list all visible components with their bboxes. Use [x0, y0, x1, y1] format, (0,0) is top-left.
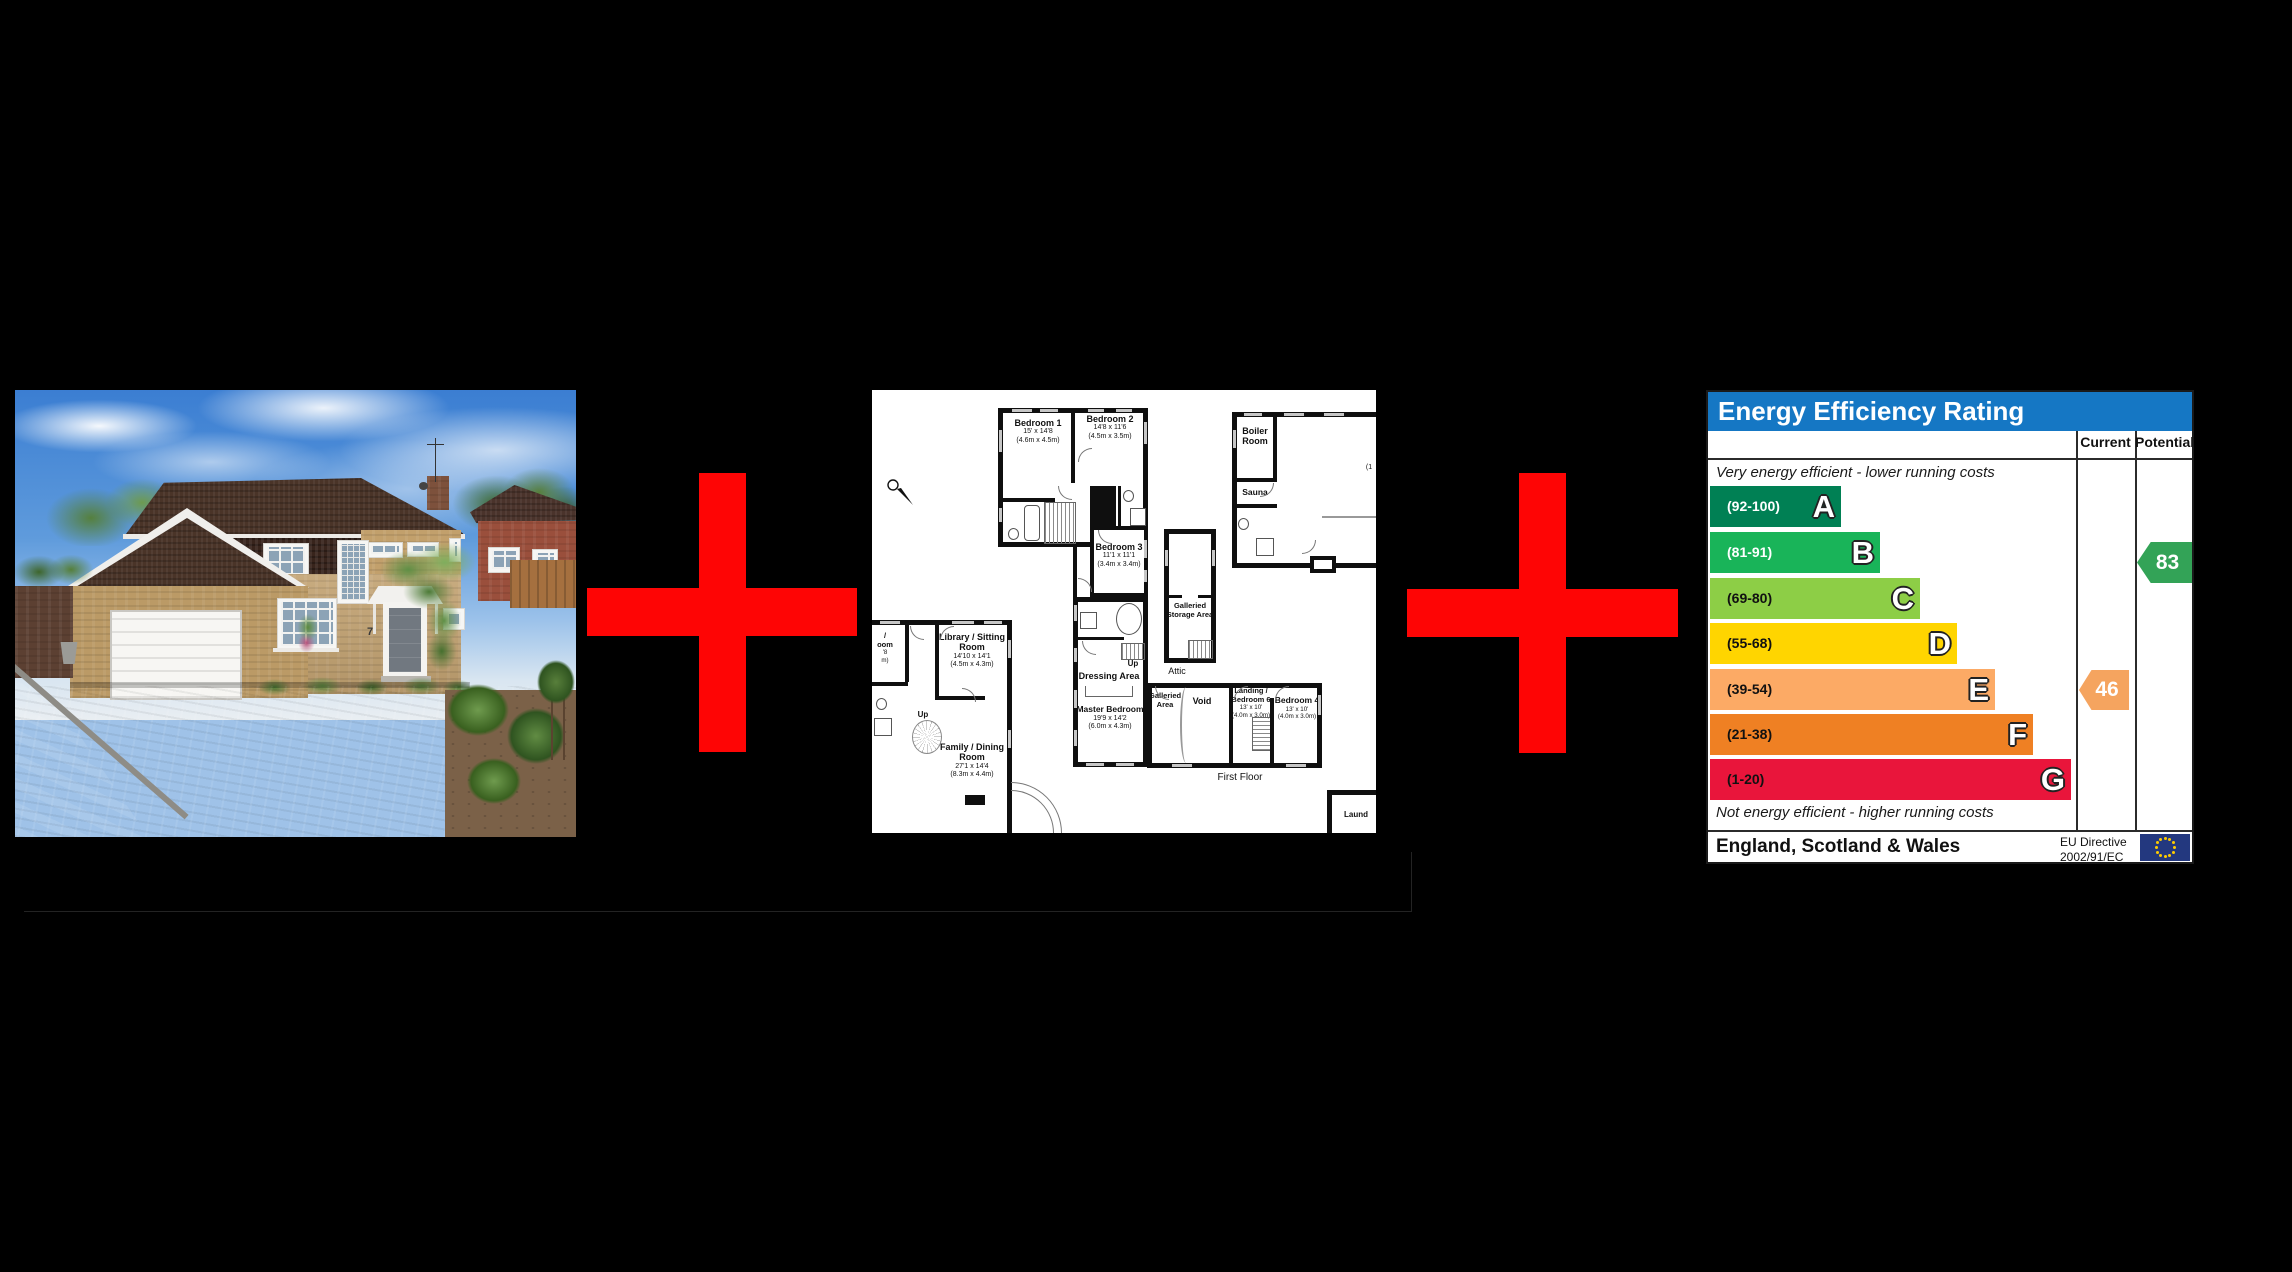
staircase: [1188, 640, 1213, 659]
window-gap: [1040, 409, 1058, 412]
bathtub-icon: [1116, 603, 1142, 635]
room-fragment: Laund: [1336, 810, 1376, 819]
wall: [1073, 547, 1077, 601]
band-letter: A: [1813, 487, 1835, 526]
epc-chart: Energy Efficiency Rating Current Potenti…: [1706, 390, 2194, 864]
porch-bump: [1310, 556, 1336, 573]
window-gap: [1144, 540, 1147, 558]
satellite-dish-icon: [419, 482, 428, 490]
column-divider: [2135, 431, 2137, 830]
band-letter: B: [1852, 533, 1874, 572]
toilet-icon: [1123, 490, 1134, 502]
epc-band-d: (55-68) D: [1710, 623, 1957, 664]
room-fragment: / oom '8 m): [872, 632, 900, 664]
divider-line-bottom: [24, 911, 1412, 912]
window-gap: [1116, 763, 1134, 766]
toilet-icon: [1238, 518, 1249, 530]
house-photo: 7: [15, 390, 576, 837]
window-gap: [1318, 695, 1321, 715]
attic-label: Attic: [1162, 666, 1192, 677]
fireplace: [965, 795, 985, 805]
shower-icon: [874, 718, 892, 736]
window-gap: [1074, 605, 1077, 621]
window-gap: [952, 621, 974, 624]
staircase: [1121, 643, 1145, 660]
window-gap: [880, 621, 900, 624]
wall: [1273, 412, 1277, 482]
wall: [1169, 595, 1182, 598]
eu-directive-line1: EU Directive: [2060, 835, 2138, 850]
window-gap: [1244, 413, 1262, 416]
balcony-rail: [1322, 516, 1376, 518]
band-range: (69-80): [1727, 578, 1772, 619]
chimney: [427, 476, 449, 510]
window-gap: [1012, 409, 1032, 412]
toilet-icon: [876, 698, 887, 710]
window-gap: [1165, 550, 1168, 566]
bush: [467, 758, 521, 804]
band-letter: F: [2008, 715, 2027, 754]
room-label: Master Bedroom 19'9 x 14'2 (6.0m x 4.3m): [1075, 705, 1145, 732]
potential-rating-marker: 83: [2137, 542, 2192, 583]
up-label: Up: [914, 710, 932, 719]
tv-aerial-icon: [427, 444, 444, 445]
house-number: 7: [367, 626, 373, 638]
footer-region: England, Scotland & Wales: [1716, 836, 1960, 858]
band-letter: C: [1892, 579, 1914, 618]
room-label: Void: [1188, 696, 1216, 706]
wardrobe-icon: [1085, 686, 1133, 697]
window-gap: [1212, 550, 1215, 566]
climbing-plant: [421, 598, 467, 674]
column-divider: [2076, 431, 2078, 830]
small-tree: [537, 660, 575, 704]
tall-lattice-window: [337, 540, 369, 604]
window-glass: [341, 544, 365, 600]
front-door: [389, 608, 421, 672]
house-base-shadow: [70, 682, 470, 688]
room-fragment: (1: [1362, 464, 1376, 472]
window-gap: [1144, 422, 1147, 444]
window-gap: [1144, 570, 1147, 582]
room-label: Boiler Room: [1235, 426, 1275, 447]
shower-icon: [1256, 538, 1274, 556]
wall: [1232, 478, 1277, 482]
plus-vertical-bar: [1519, 473, 1566, 753]
band-range: (81-91): [1727, 532, 1772, 573]
epc-band-e: (39-54) E: [1710, 669, 1995, 710]
window-gap: [1172, 764, 1192, 767]
plus-vertical-bar: [699, 473, 746, 752]
shower-icon: [1130, 508, 1146, 526]
footer-divider: [1708, 830, 2192, 832]
eu-flag-icon: [2140, 834, 2190, 861]
bottom-note: Not energy efficient - higher running co…: [1716, 804, 1994, 821]
wall: [1118, 486, 1121, 526]
floor-label: First Floor: [1210, 772, 1270, 784]
rose-bush: [293, 612, 323, 656]
room-label: Dressing Area: [1078, 671, 1140, 681]
bush: [447, 684, 509, 736]
chimney-breast: [1090, 486, 1116, 528]
up-label: Up: [1124, 659, 1142, 668]
band-letter: D: [1929, 624, 1951, 663]
bush: [507, 708, 565, 764]
room-label: Galleried Storage Area: [1166, 602, 1214, 619]
divider-line-right: [1411, 852, 1412, 911]
epc-band-a: (92-100) A: [1710, 486, 1841, 527]
shower-icon: [1080, 612, 1097, 629]
wall: [1327, 790, 1332, 833]
window-gap: [984, 621, 1002, 624]
garden-wall: [15, 586, 73, 678]
current-column-header: Current: [2076, 434, 2135, 450]
band-range: (39-54): [1727, 669, 1772, 710]
window-gap: [1116, 409, 1132, 412]
wall: [1078, 637, 1124, 640]
epc-title: Energy Efficiency Rating: [1708, 392, 2192, 431]
header-row-divider: [1708, 458, 2192, 460]
room-label: Bedroom 3 11'1 x 11'1 (3.4m x 3.4m): [1092, 542, 1146, 569]
epc-band-c: (69-80) C: [1710, 578, 1920, 619]
compass-north-icon: [886, 478, 916, 508]
toilet-icon: [1008, 528, 1019, 540]
window-gap: [1284, 413, 1304, 416]
window-gap: [1233, 430, 1236, 448]
room-label: Bedroom 1 15' x 14'8 (4.6m x 4.5m): [1003, 418, 1073, 445]
window-gap: [1074, 730, 1077, 746]
band-range: (55-68): [1727, 623, 1772, 664]
staircase: [1044, 502, 1076, 544]
staircase: [1252, 717, 1271, 751]
top-note: Very energy efficient - lower running co…: [1716, 464, 1995, 481]
current-rating-marker: 46: [2079, 670, 2129, 710]
wall: [872, 682, 908, 686]
window-gap: [1074, 690, 1077, 708]
band-letter: G: [2041, 760, 2065, 799]
window-gap: [1086, 763, 1104, 766]
hedge-left: [15, 548, 95, 596]
wall: [905, 624, 909, 682]
canopy-post: [373, 604, 376, 634]
wall: [1198, 595, 1211, 598]
eu-directive: EU Directive 2002/91/EC: [2060, 835, 2138, 864]
wall: [1232, 504, 1277, 508]
fence: [510, 560, 576, 608]
potential-column-header: Potential: [2135, 434, 2192, 450]
window-gap: [1088, 409, 1104, 412]
eu-directive-line2: 2002/91/EC: [2060, 850, 2138, 864]
wall: [935, 696, 985, 700]
epc-band-b: (81-91) B: [1710, 532, 1880, 573]
eu-flag-stars: [2173, 846, 2176, 849]
wall: [1327, 790, 1376, 795]
band-range: (1-20): [1727, 759, 1764, 800]
band-range: (21-38): [1727, 714, 1772, 755]
window-gap: [1286, 764, 1306, 767]
room-label: Family / Dining Room 27'1 x 14'4 (8.3m x…: [932, 742, 1012, 779]
window-gap: [1008, 640, 1011, 658]
window-gap: [1074, 648, 1077, 662]
room-label: Bedroom 2 14'8 x 11'6 (4.5m x 3.5m): [1075, 414, 1145, 441]
window-gap: [1324, 413, 1344, 416]
window-gap: [1008, 730, 1011, 748]
epc-band-f: (21-38) F: [1710, 714, 2033, 755]
window-gap: [999, 508, 1002, 522]
epc-band-g: (1-20) G: [1710, 759, 2071, 800]
band-letter: E: [1968, 670, 1989, 709]
bathtub-icon: [1024, 505, 1040, 541]
floorplan: Bedroom 1 15' x 14'8 (4.6m x 4.5m) Bedro…: [872, 390, 1376, 833]
window-gap: [999, 430, 1002, 452]
band-range: (92-100): [1727, 486, 1780, 527]
